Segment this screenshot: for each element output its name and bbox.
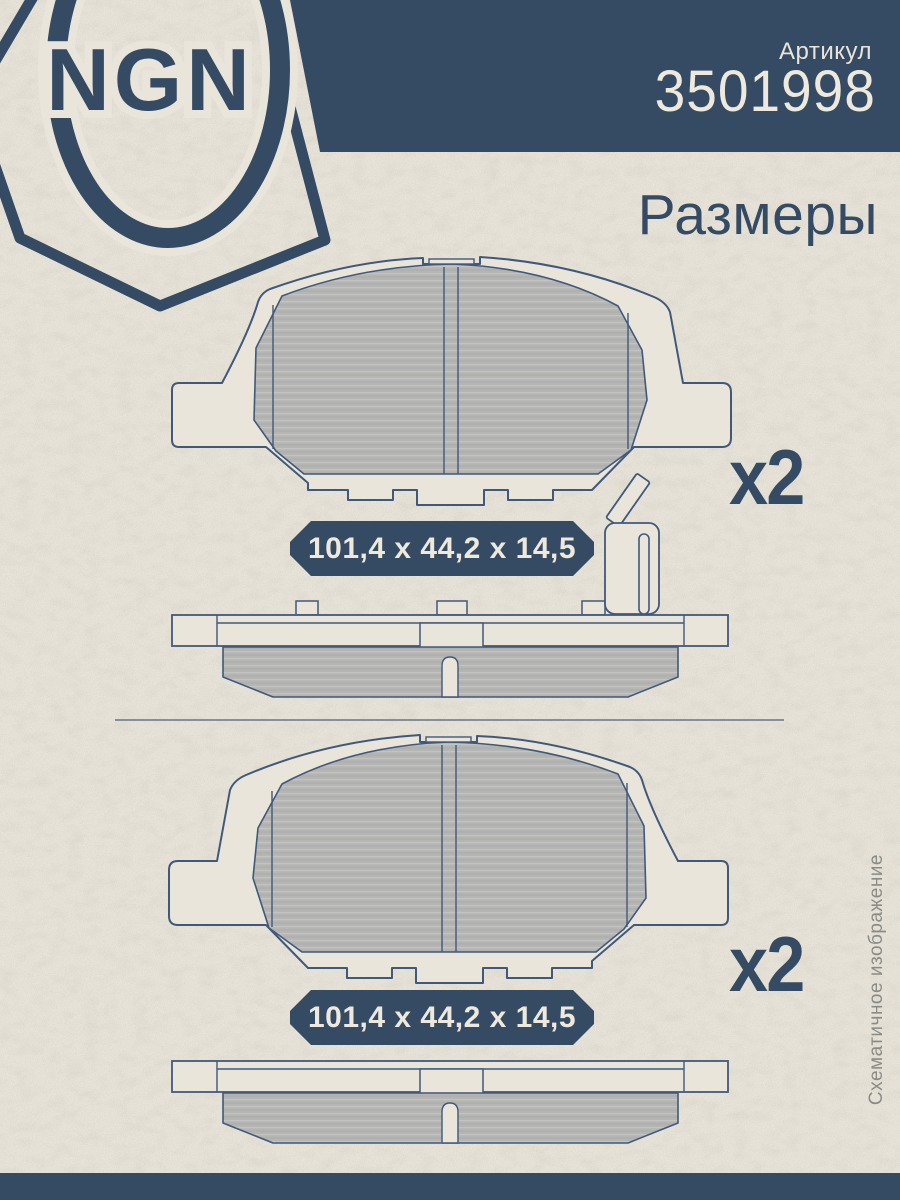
quantity-label-1: x2 — [729, 438, 803, 516]
dimensions-badge-2: 101,4 x 44,2 x 14,5 — [290, 990, 594, 1045]
dimensions-text-1: 101,4 x 44,2 x 14,5 — [308, 532, 576, 566]
pad-side-view-2 — [172, 1061, 728, 1143]
logo-text: NGN — [46, 30, 254, 129]
dimensions-badge-1: 101,4 x 44,2 x 14,5 — [290, 521, 594, 576]
page-title: Размеры — [638, 182, 878, 248]
product-card: NGN Артикул 3501998 Размеры 101,4 x 44,2… — [0, 0, 900, 1200]
schematic-note: Схематичное изображение — [867, 854, 886, 1105]
footer-bar — [0, 1173, 900, 1200]
article-number: 3501998 — [655, 58, 876, 125]
ngn-logo: NGN — [0, 0, 380, 330]
quantity-label-2: x2 — [729, 925, 803, 1003]
dimensions-text-2: 101,4 x 44,2 x 14,5 — [308, 1001, 576, 1035]
wear-indicator-side-icon — [605, 523, 659, 614]
